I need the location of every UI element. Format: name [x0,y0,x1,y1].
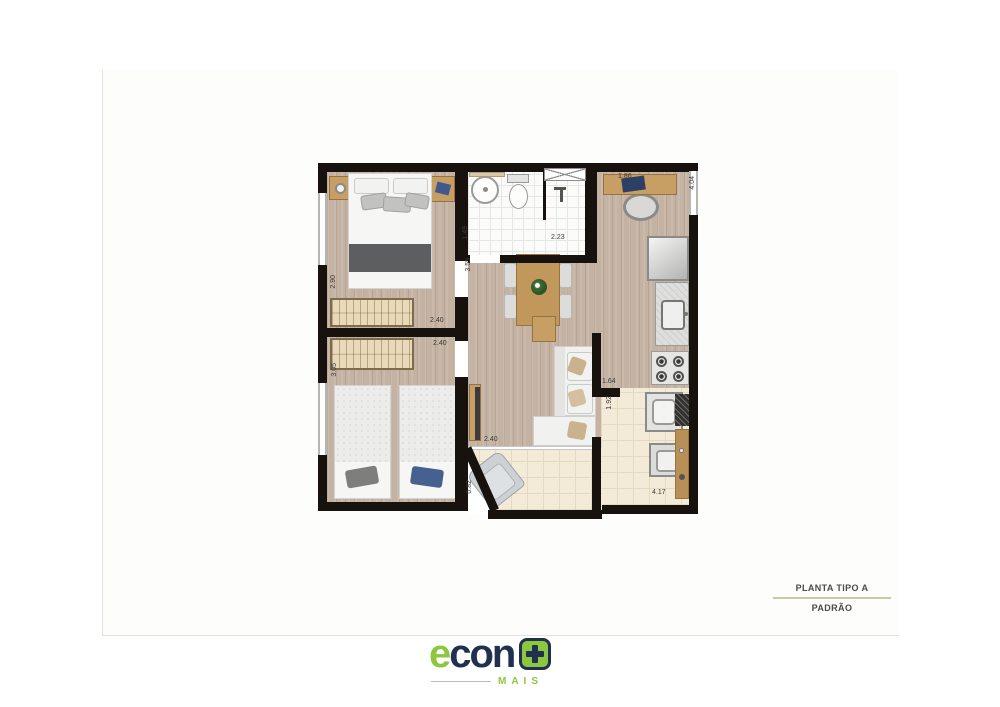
single-bed [399,385,456,499]
stove-icon [651,351,689,385]
wardrobe-icon [330,298,414,327]
dim-label: 1.64 [602,378,616,385]
dim-label: 2.23 [551,234,565,241]
sliding-door [468,446,592,450]
burner-icon [656,371,667,382]
washer-drum [652,399,676,425]
dim-label: 2.40 [430,317,444,324]
kitchen-counter [655,282,689,346]
dining-chair-icon [559,263,572,288]
office-chair-icon [623,193,659,221]
sofa-back [555,347,565,417]
dim-label: 1.49 [462,226,469,240]
lamp-icon [335,183,346,194]
toilet-icon [509,184,528,209]
sofa-chaise [533,416,596,446]
nightstand [329,176,350,200]
laptop-icon [435,181,451,195]
burner-icon [656,356,667,367]
single-bed [334,385,391,499]
dim-label: 3.55 [465,258,472,272]
faucet-icon [483,187,488,192]
dim-label: 4.04 [689,176,696,190]
service-door [675,429,689,499]
wall [689,163,698,514]
wall [592,437,601,515]
title-rule [773,597,891,599]
dim-label: 0.82 [466,480,473,494]
door-opening [470,255,500,263]
sofa-icon [554,346,596,416]
folded-clothes [410,466,444,488]
door-knob-icon [679,474,685,480]
econ-logo: econ MAIS [429,634,589,687]
wall [602,505,698,514]
shower-icon [560,187,563,202]
logo-text: econ [429,634,514,674]
folded-clothes [345,465,380,488]
door-opening [455,341,468,377]
wall [488,510,602,519]
window [318,383,327,455]
desk [603,174,677,195]
dim-label: 1.86 [618,173,632,180]
logo-wordmark: econ [429,634,589,674]
faucet-icon [684,312,688,316]
burner-icon [673,371,684,382]
logo-e: e [429,632,449,676]
fridge-icon [647,236,689,281]
dim-label: 2.40 [433,340,447,347]
bed-duvet [335,386,390,462]
floor-plan: 1.86 4.04 1.49 2.23 3.55 2.40 2.90 2.40 … [318,163,698,519]
title-block: PLANTA TIPO A PADRÃO [773,583,891,613]
tagline-rule [431,681,491,682]
dim-label: 4.17 [652,489,666,496]
door-knob-icon [679,448,684,453]
wall [318,163,698,172]
page: 1.86 4.04 1.49 2.23 3.55 2.40 2.90 2.40 … [0,0,1000,707]
plan-subtitle: PADRÃO [773,603,891,613]
plant-icon [531,279,547,295]
sideboard-front [475,387,480,440]
burner-icon [673,356,684,367]
logo-tagline-row: MAIS [431,676,589,687]
plan-title: PLANTA TIPO A [773,583,891,593]
shower-shelf [544,168,586,181]
plus-icon [519,638,551,670]
wall [585,172,597,263]
wardrobe-icon [330,338,414,370]
sideboard [469,384,481,441]
bathroom-sink-icon [471,176,499,204]
console-table [532,316,556,342]
throw-pillow [567,421,588,441]
kitchen-sink-icon [661,300,685,330]
wall [318,502,468,511]
bed-blanket [349,244,431,272]
window [318,193,327,265]
toilet-tank [507,174,529,183]
dim-label: 3.05 [331,363,338,377]
bed-duvet [400,386,455,462]
wall [327,328,455,337]
nightstand [431,176,455,202]
dining-chair-icon [559,294,572,319]
logo-tagline: MAIS [498,676,543,687]
dim-label: 2.90 [330,275,337,289]
service-cabinet [675,394,689,426]
dim-label: 2.40 [484,436,498,443]
logo-con: con [449,632,514,676]
pillow [393,178,428,194]
double-bed [348,173,432,289]
dim-label: 1.92 [606,396,613,410]
